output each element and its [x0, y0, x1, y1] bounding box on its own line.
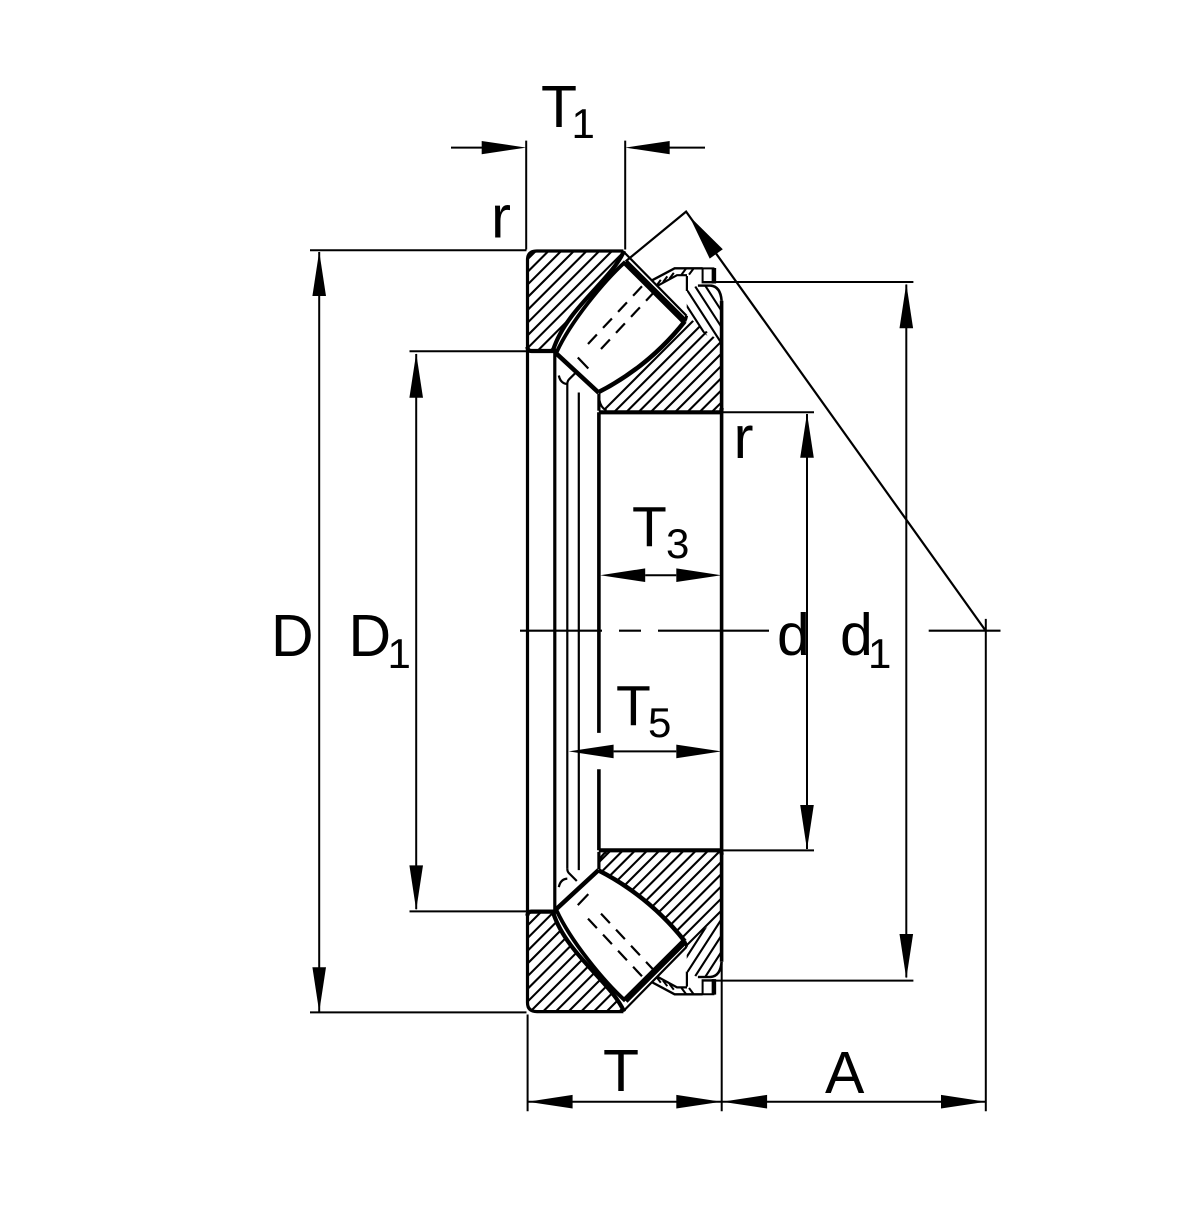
svg-text:1: 1: [868, 630, 891, 677]
svg-text:3: 3: [666, 520, 689, 567]
svg-text:5: 5: [648, 699, 671, 746]
svg-text:T: T: [603, 1038, 639, 1104]
svg-text:r: r: [734, 404, 754, 471]
svg-text:T: T: [632, 495, 667, 559]
svg-text:T: T: [616, 674, 651, 738]
svg-text:A: A: [825, 1040, 865, 1106]
svg-text:D: D: [349, 603, 392, 669]
svg-text:r: r: [491, 184, 511, 251]
svg-text:1: 1: [388, 630, 411, 677]
svg-text:D: D: [271, 603, 314, 669]
svg-text:1: 1: [572, 100, 595, 147]
svg-text:d: d: [777, 602, 810, 668]
